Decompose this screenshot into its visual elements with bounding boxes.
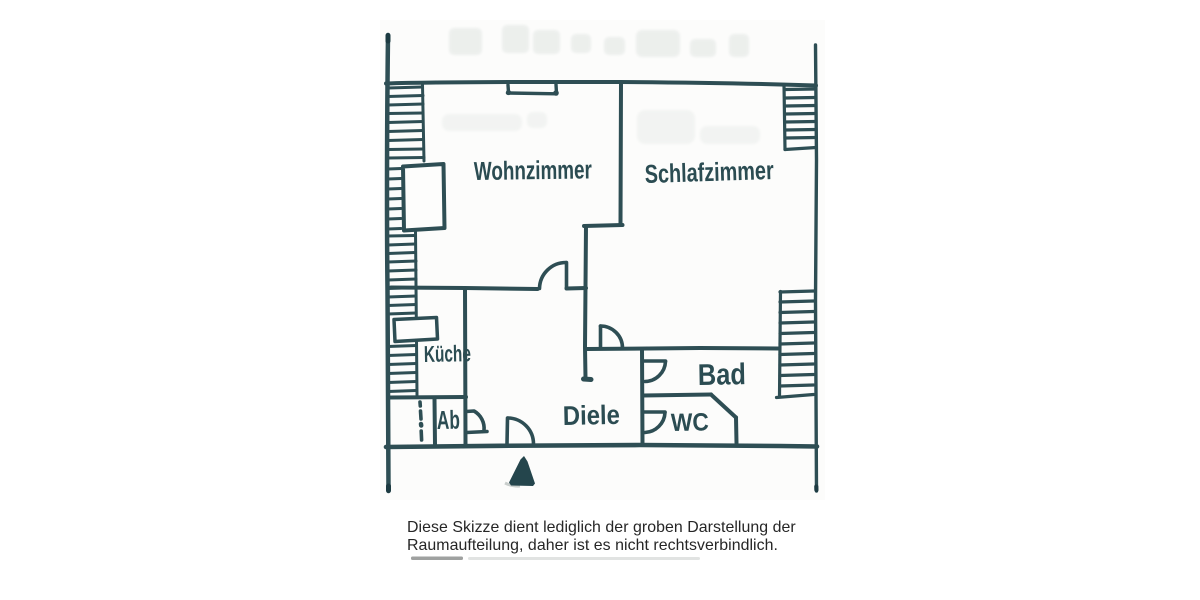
svg-text:Bad: Bad [698,358,747,392]
svg-text:Diele: Diele [562,400,620,431]
svg-text:Wohnzimmer: Wohnzimmer [474,154,592,186]
svg-text:Schlafzimmer: Schlafzimmer [644,155,774,189]
svg-text:Ab: Ab [437,405,461,435]
svg-text:WC: WC [671,408,709,437]
svg-text:Küche: Küche [424,340,471,367]
